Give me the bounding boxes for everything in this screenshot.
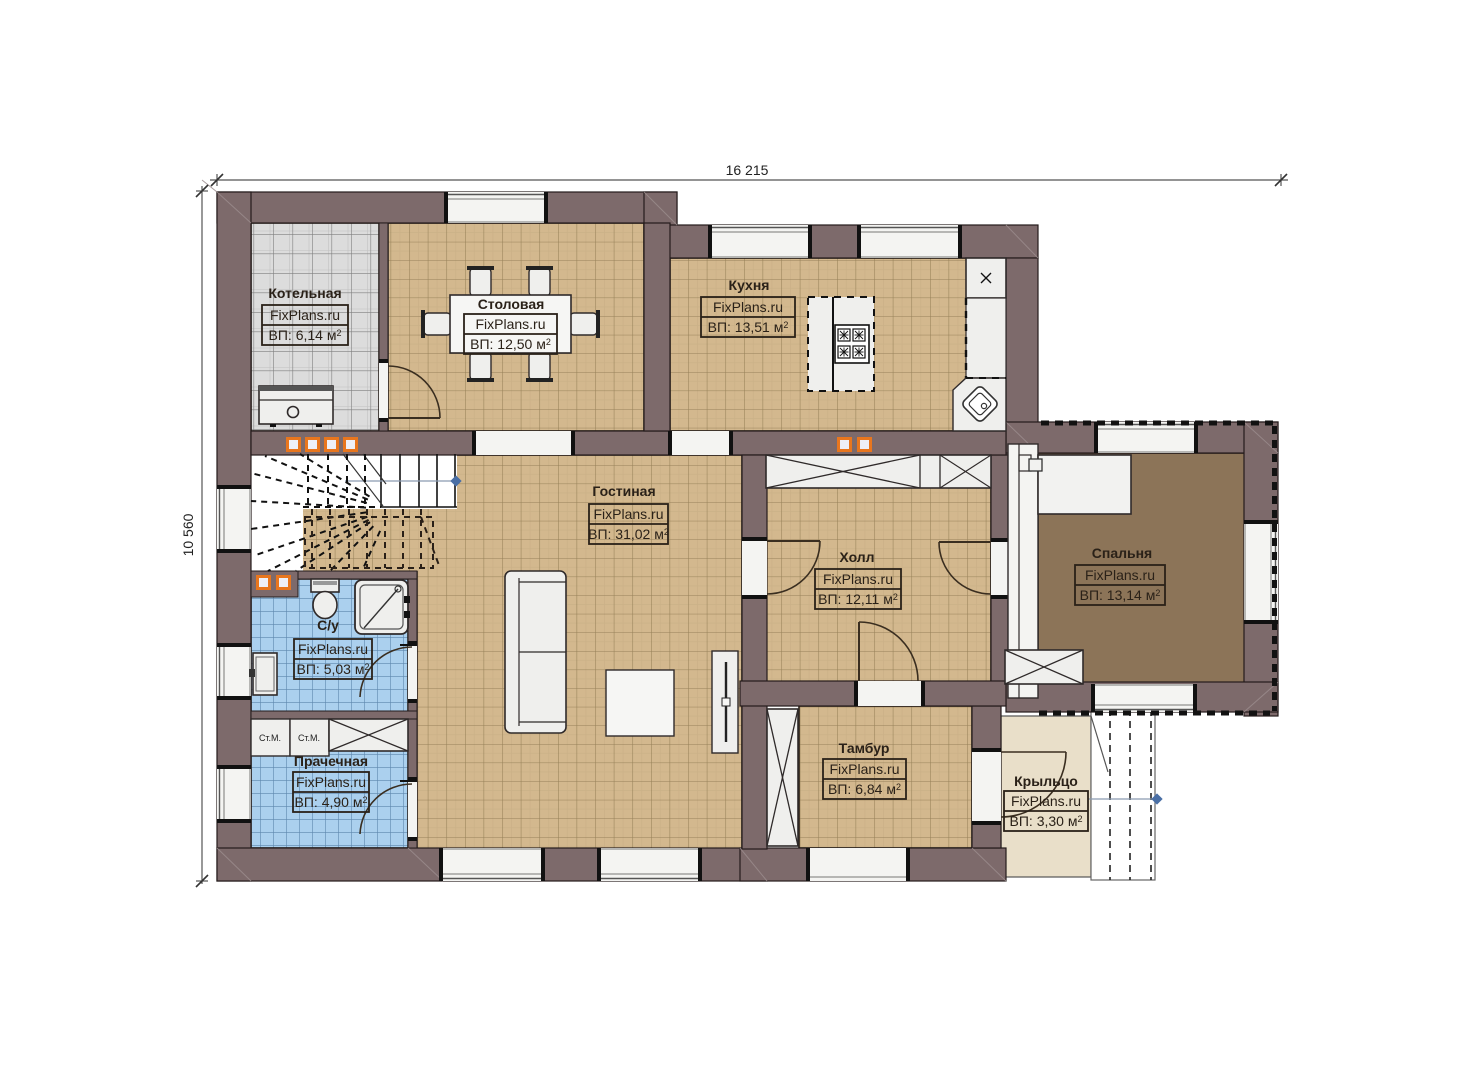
svg-text:ВП: 12,11 м2: ВП: 12,11 м2	[818, 591, 898, 607]
svg-text:FixPlans.ru: FixPlans.ru	[823, 571, 893, 587]
svg-text:Прачечная: Прачечная	[294, 753, 368, 769]
svg-text:ВП: 12,50 м2: ВП: 12,50 м2	[470, 336, 551, 352]
svg-text:Гостиная: Гостиная	[592, 483, 655, 499]
svg-text:ВП: 3,30 м2: ВП: 3,30 м2	[1010, 813, 1083, 829]
svg-text:Котельная: Котельная	[268, 285, 341, 301]
svg-text:Ст.М.: Ст.М.	[259, 733, 281, 743]
svg-text:FixPlans.ru: FixPlans.ru	[829, 761, 899, 777]
svg-text:ВП: 4,90 м2: ВП: 4,90 м2	[295, 794, 368, 810]
svg-text:Тамбур: Тамбур	[839, 740, 890, 756]
svg-text:ВП: 5,03 м2: ВП: 5,03 м2	[297, 661, 370, 677]
svg-text:ВП: 6,14 м2: ВП: 6,14 м2	[269, 327, 342, 343]
svg-text:Холл: Холл	[839, 549, 874, 565]
svg-text:Кухня: Кухня	[729, 277, 770, 293]
svg-text:Столовая: Столовая	[478, 296, 545, 312]
svg-text:ВП: 31,02 м2: ВП: 31,02 м2	[588, 526, 669, 542]
svg-text:FixPlans.ru: FixPlans.ru	[270, 307, 340, 323]
svg-text:FixPlans.ru: FixPlans.ru	[298, 641, 368, 657]
svg-text:ВП: 13,51 м2: ВП: 13,51 м2	[708, 319, 789, 335]
svg-text:ВП: 13,14 м2: ВП: 13,14 м2	[1080, 587, 1161, 603]
svg-text:FixPlans.ru: FixPlans.ru	[1085, 567, 1155, 583]
svg-text:FixPlans.ru: FixPlans.ru	[1011, 793, 1081, 809]
svg-text:FixPlans.ru: FixPlans.ru	[296, 774, 366, 790]
svg-text:FixPlans.ru: FixPlans.ru	[713, 299, 783, 315]
svg-text:Ст.М.: Ст.М.	[298, 733, 320, 743]
svg-text:Спальня: Спальня	[1092, 545, 1152, 561]
svg-text:FixPlans.ru: FixPlans.ru	[475, 316, 545, 332]
svg-text:10 560: 10 560	[180, 513, 196, 556]
svg-text:ВП: 6,84 м2: ВП: 6,84 м2	[828, 781, 901, 797]
svg-text:16 215: 16 215	[726, 162, 769, 178]
svg-text:С/у: С/у	[317, 617, 339, 633]
svg-text:Крыльцо: Крыльцо	[1014, 773, 1078, 789]
svg-text:FixPlans.ru: FixPlans.ru	[593, 506, 663, 522]
